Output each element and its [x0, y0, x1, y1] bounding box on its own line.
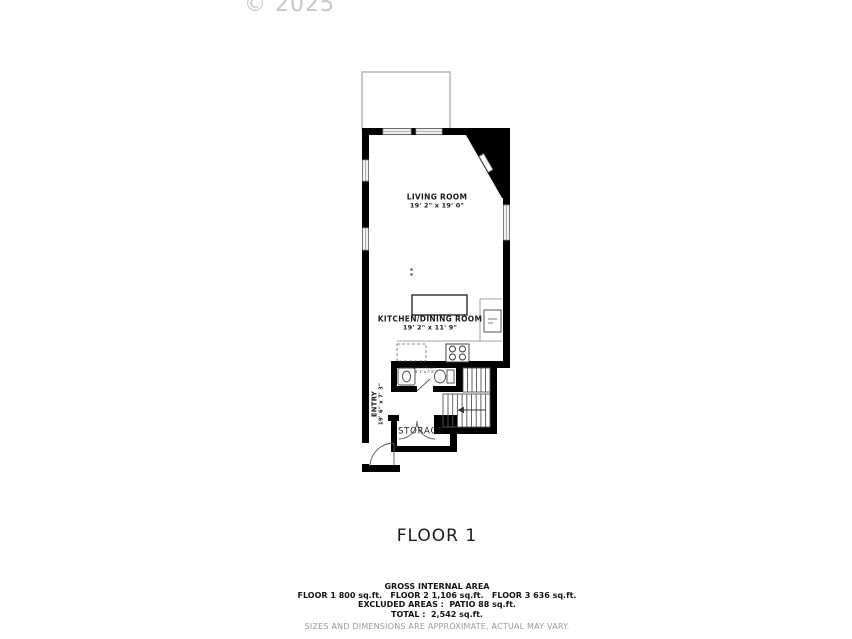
floor-plan-page: © 2025 — [0, 0, 852, 639]
area-summary: GROSS INTERNAL AREA FLOOR 1 800 sq.ft. F… — [237, 582, 637, 631]
room-label-entry: ENTRY 19' 6" x 7' 3" — [370, 383, 385, 425]
front-door — [370, 443, 394, 466]
living-room-name: LIVING ROOM — [407, 192, 468, 201]
right-window — [504, 205, 510, 240]
toilet — [435, 370, 455, 383]
living-room-dims: 19' 2" x 19' 0" — [407, 202, 468, 210]
total-area-line: TOTAL : 2,542 sq.ft. — [237, 610, 637, 619]
patio-outline — [362, 72, 450, 129]
floor-areas-line: FLOOR 1 800 sq.ft. FLOOR 2 1,106 sq.ft. … — [237, 591, 637, 600]
room-label-kitchen-dining: KITCHEN/DINING ROOM 19' 2" x 11' 9" — [378, 314, 482, 332]
stairs-upper-flight — [463, 368, 490, 392]
floor-title: FLOOR 1 — [337, 526, 537, 546]
gross-internal-area-title: GROSS INTERNAL AREA — [237, 582, 637, 591]
room-label-storage: STORAGE — [398, 427, 444, 438]
kitchen-dining-dims: 19' 2" x 11' 9" — [378, 324, 482, 332]
refrigerator — [484, 310, 501, 332]
entry-name: ENTRY — [370, 383, 378, 425]
left-window-1 — [363, 160, 369, 181]
left-window-2 — [363, 228, 369, 250]
floor-symbol-dots — [411, 269, 413, 276]
room-label-living-room: LIVING ROOM 19' 2" x 19' 0" — [407, 192, 468, 210]
patio-slider-window-2 — [416, 129, 442, 135]
kitchen-dining-name: KITCHEN/DINING ROOM — [378, 314, 482, 323]
bathroom-door — [417, 379, 430, 391]
bathroom-sink — [398, 368, 415, 385]
excluded-areas-line: EXCLUDED AREAS : PATIO 88 sq.ft. — [237, 600, 637, 609]
disclaimer-line: SIZES AND DIMENSIONS ARE APPROXIMATE, AC… — [237, 622, 637, 631]
front-door-opening — [362, 443, 370, 464]
entry-dims: 19' 6" x 7' 3" — [379, 383, 386, 425]
patio-slider-window-1 — [383, 129, 411, 135]
room-label-bathroom: BATHROOM 5' 1" x 7' 5" — [414, 366, 435, 374]
kitchen-island — [412, 295, 467, 315]
bathroom-dims: 5' 1" x 7' 5" — [414, 370, 435, 374]
dishwasher-dashed-outline — [397, 344, 426, 361]
stove — [446, 344, 469, 362]
